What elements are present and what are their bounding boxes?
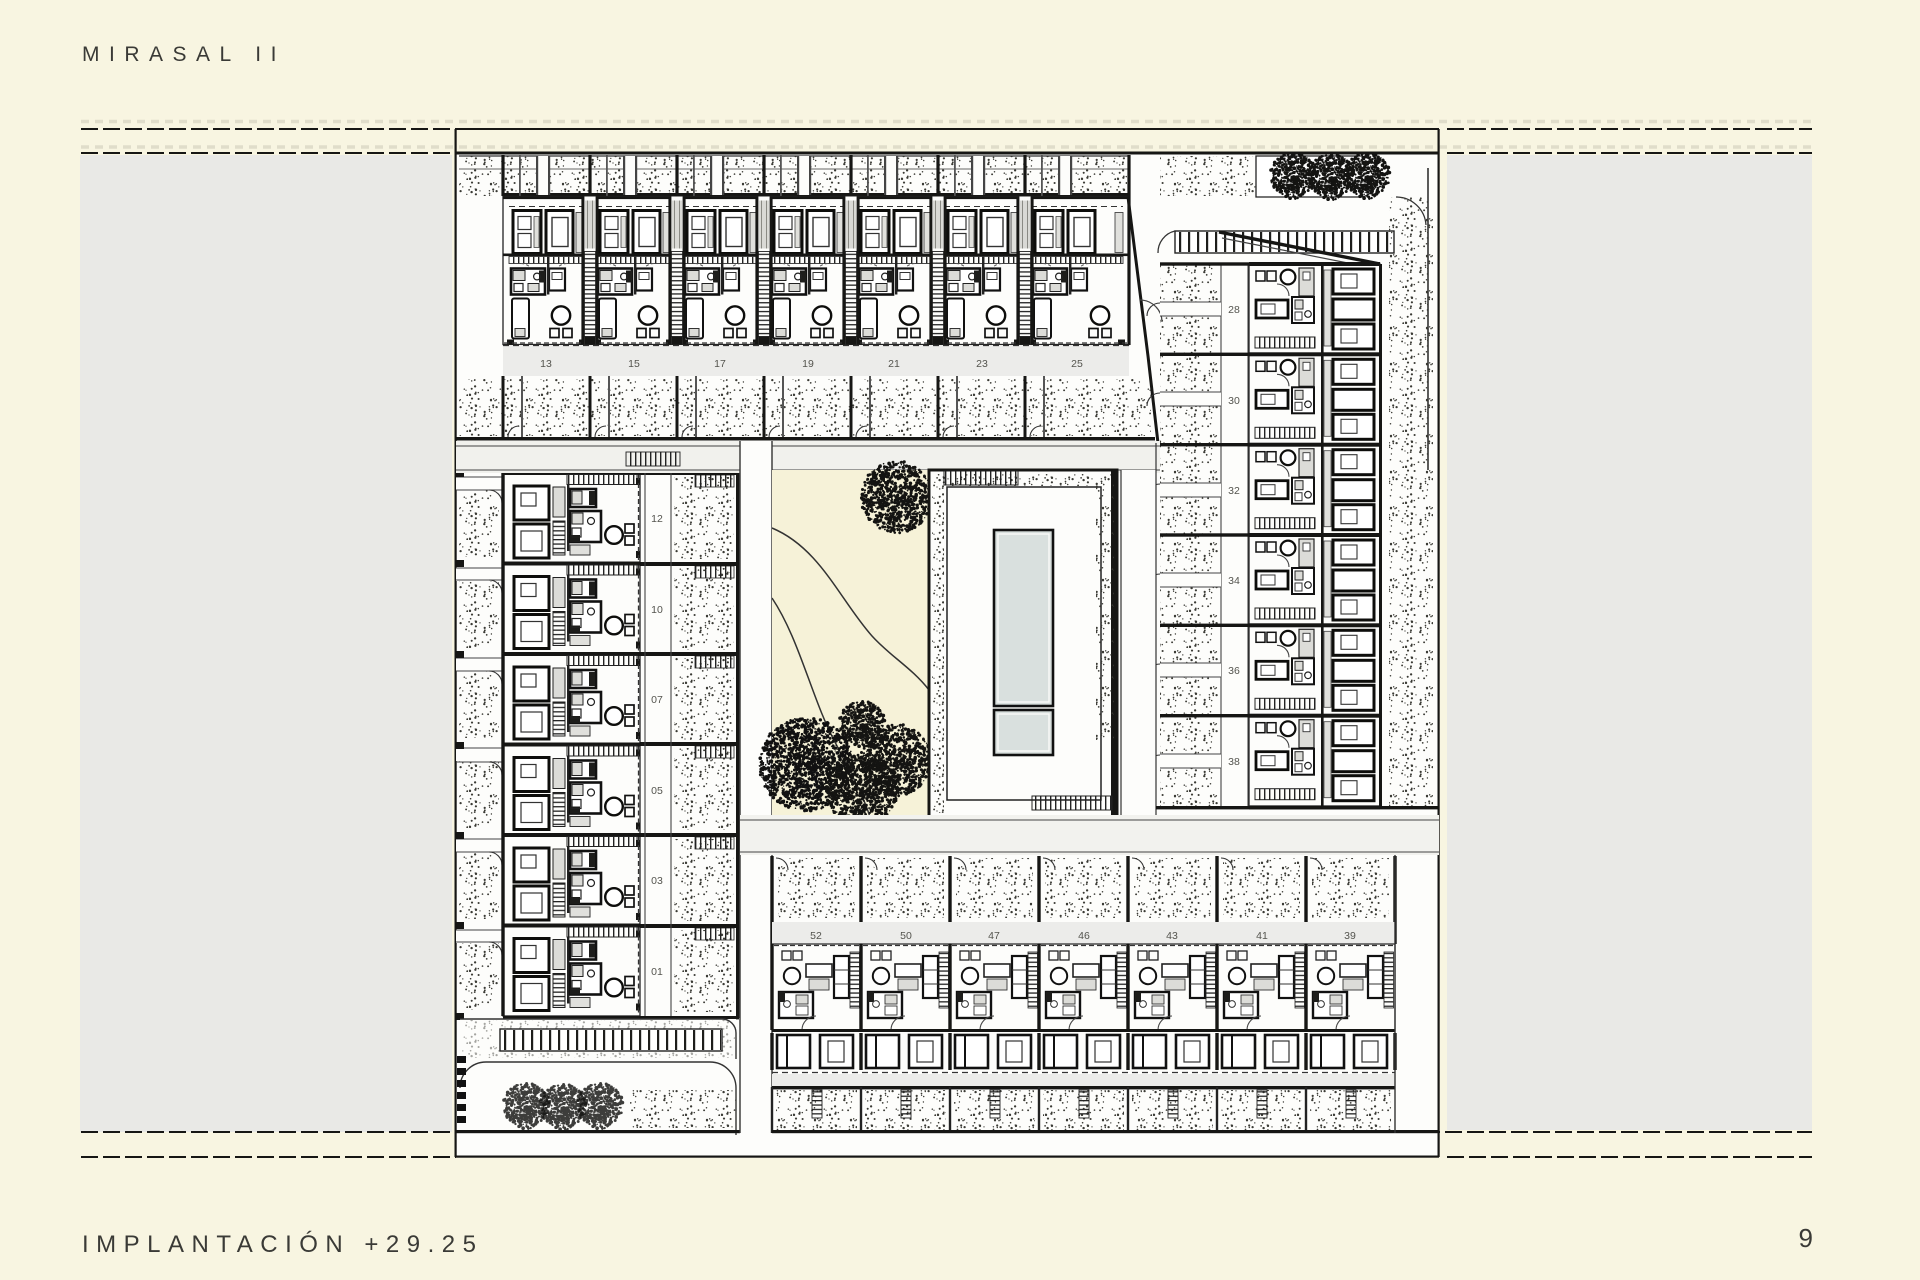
svg-text:17: 17 — [714, 358, 726, 370]
svg-text:10: 10 — [651, 604, 663, 616]
svg-text:41: 41 — [1256, 930, 1268, 942]
svg-text:21: 21 — [888, 358, 900, 370]
svg-text:25: 25 — [1071, 358, 1083, 370]
svg-text:38: 38 — [1228, 756, 1240, 768]
svg-text:39: 39 — [1344, 930, 1356, 942]
svg-text:52: 52 — [810, 930, 822, 942]
svg-text:43: 43 — [1166, 930, 1178, 942]
svg-text:30: 30 — [1228, 395, 1240, 407]
svg-text:12: 12 — [651, 513, 663, 525]
svg-text:01: 01 — [651, 966, 663, 978]
svg-text:9: 9 — [1799, 1223, 1813, 1253]
svg-text:23: 23 — [976, 358, 988, 370]
svg-text:19: 19 — [802, 358, 814, 370]
svg-text:03: 03 — [651, 875, 663, 887]
svg-text:50: 50 — [900, 930, 912, 942]
svg-text:07: 07 — [651, 694, 663, 706]
svg-text:IMPLANTACIÓN +29.25: IMPLANTACIÓN +29.25 — [82, 1231, 483, 1258]
svg-text:05: 05 — [651, 785, 663, 797]
svg-text:36: 36 — [1228, 665, 1240, 677]
svg-text:MIRASAL II: MIRASAL II — [82, 43, 286, 66]
svg-text:28: 28 — [1228, 304, 1240, 316]
svg-text:46: 46 — [1078, 930, 1090, 942]
svg-text:34: 34 — [1228, 575, 1240, 587]
svg-text:13: 13 — [540, 358, 552, 370]
svg-text:32: 32 — [1228, 485, 1240, 497]
svg-text:47: 47 — [988, 930, 1000, 942]
svg-text:15: 15 — [628, 358, 640, 370]
